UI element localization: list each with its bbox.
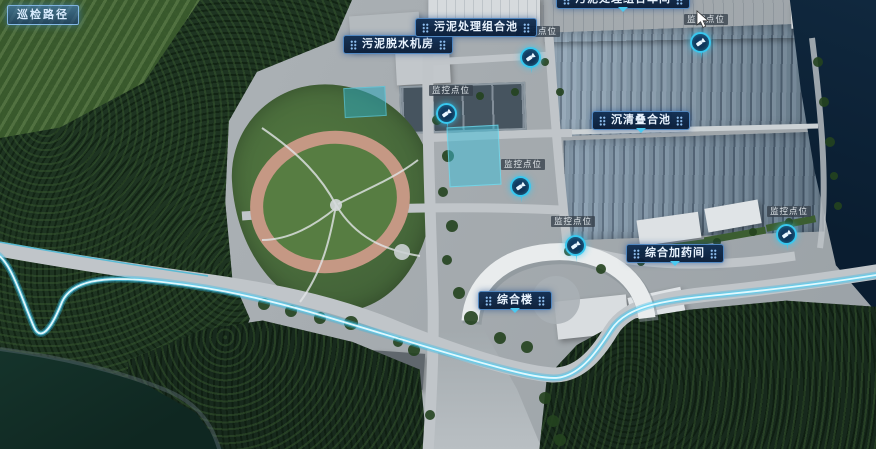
building-label-text: 沉清叠合池: [611, 114, 671, 127]
building-label-text: 污泥处理组合池: [434, 21, 518, 34]
label-sedimentation-pool[interactable]: 沉清叠合池: [592, 111, 690, 130]
label-complex-building[interactable]: 综合楼: [478, 291, 552, 310]
building-label-text: 综合加药间: [645, 247, 705, 260]
camera-point-label: 监控点位: [429, 85, 473, 96]
camera-icon: [515, 181, 526, 192]
camera-point-label: 监控点位: [501, 159, 545, 170]
label-dots-left: [633, 249, 640, 259]
label-dots-left: [350, 40, 357, 50]
label-dots-right: [523, 23, 530, 33]
camera-marker-circle[interactable]: [510, 176, 531, 197]
label-dots-left: [422, 23, 429, 33]
label-dots-right: [710, 249, 717, 259]
label-dots-right: [439, 40, 446, 50]
camera-icon: [570, 240, 581, 251]
building-label-text: 污泥脱水机房: [362, 38, 434, 51]
camera-icon: [695, 37, 706, 48]
camera-icon: [525, 52, 536, 63]
patrol-path-button[interactable]: 巡检路径: [7, 5, 79, 25]
camera-icon: [781, 229, 792, 240]
camera-marker-circle[interactable]: [565, 235, 586, 256]
camera-marker-circle[interactable]: [520, 47, 541, 68]
label-dots-right: [538, 296, 545, 306]
camera-marker[interactable]: 监控点位: [501, 154, 545, 197]
label-sludge-treatment-pool[interactable]: 污泥处理组合池: [415, 18, 537, 37]
label-dots-right: [676, 0, 683, 5]
label-sludge-dewatering-room[interactable]: 污泥脱水机房: [343, 35, 453, 54]
building-label-text: 污泥处理组合车间: [575, 0, 671, 6]
highlighted-court[interactable]: [343, 86, 387, 118]
camera-point-label: 监控点位: [767, 206, 811, 217]
mouse-cursor: [696, 10, 710, 29]
camera-marker-circle[interactable]: [436, 103, 457, 124]
camera-marker-circle[interactable]: [776, 224, 797, 245]
camera-icon: [441, 108, 452, 119]
camera-marker[interactable]: 监控点位: [429, 80, 473, 124]
label-treatment-workshop[interactable]: 污泥处理组合车间: [556, 0, 690, 9]
camera-marker[interactable]: 监控点位: [767, 201, 811, 245]
highlighted-pool[interactable]: [446, 125, 501, 188]
camera-marker[interactable]: 监控点位: [551, 211, 595, 256]
plant-3d-map[interactable]: 污泥脱水机房 污泥处理组合池 污泥处理组合车间 沉清叠合池 综合加药间 综合楼 …: [0, 0, 876, 449]
camera-marker-circle[interactable]: [690, 32, 711, 53]
label-dots-left: [485, 296, 492, 306]
label-dots-left: [563, 0, 570, 5]
label-dosing-room[interactable]: 综合加药间: [626, 244, 724, 263]
label-dots-right: [676, 116, 683, 126]
camera-point-label: 监控点位: [551, 216, 595, 227]
building-label-text: 综合楼: [497, 294, 533, 307]
label-dots-left: [599, 116, 606, 126]
